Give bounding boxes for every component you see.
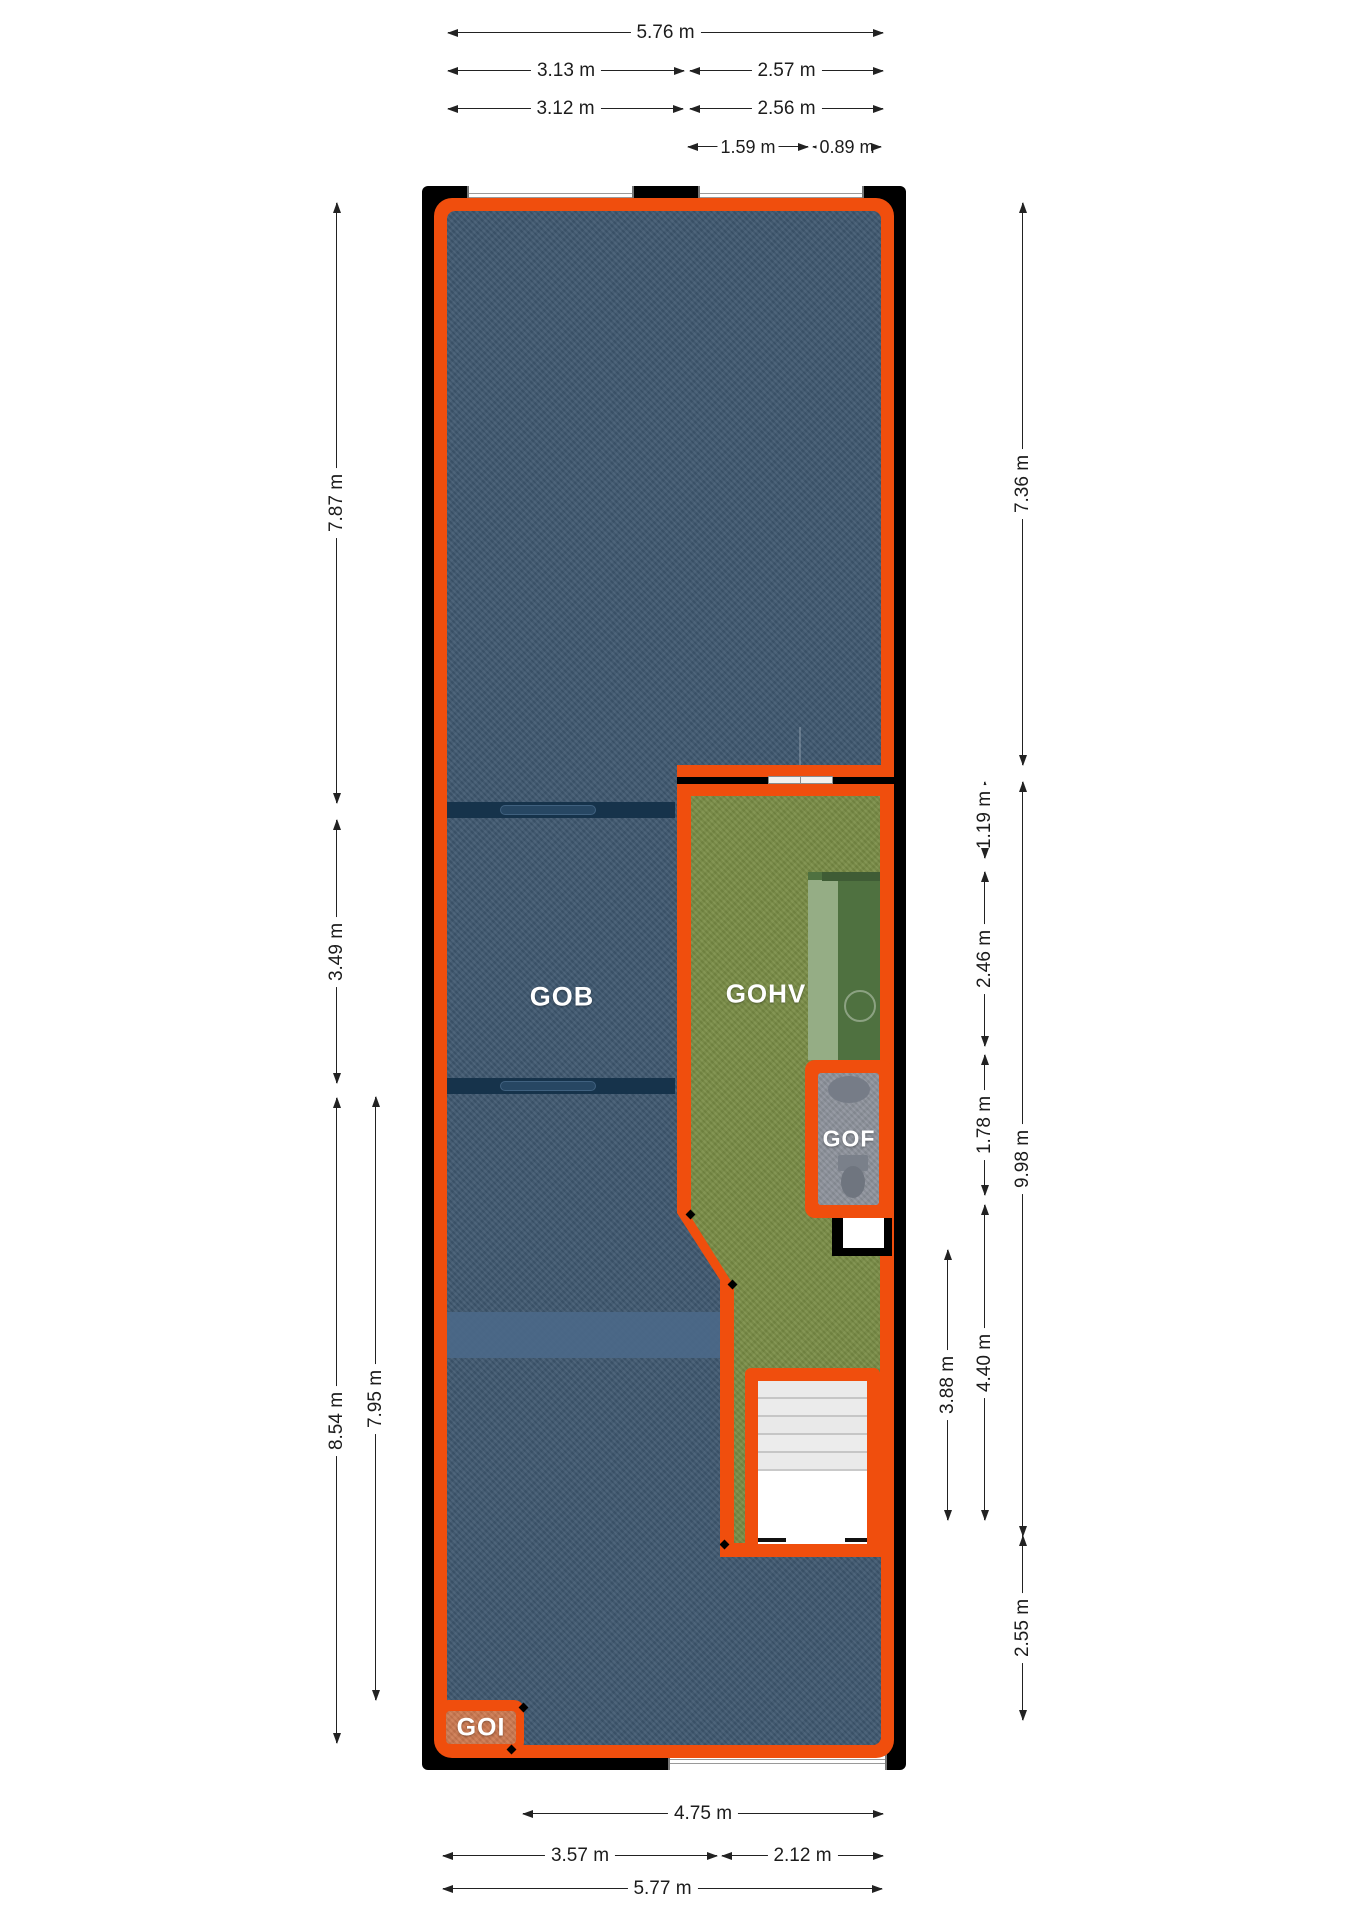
stair-tread bbox=[758, 1453, 867, 1471]
partition-line-upper bbox=[447, 802, 675, 818]
floor-light-band bbox=[447, 1312, 720, 1358]
kitchen-counter-icon bbox=[808, 872, 880, 1060]
stair-base-wall bbox=[758, 1538, 786, 1542]
dim-bottom-right: 2.12 m bbox=[722, 1855, 883, 1856]
dim-label: 8.54 m bbox=[325, 1385, 349, 1455]
dim-label: 1.59 m bbox=[717, 135, 778, 159]
dim-left-upper: 7.87 m bbox=[336, 203, 337, 803]
dim-label: 9.98 m bbox=[1011, 1124, 1035, 1194]
dim-top-window: 1.59 m bbox=[688, 146, 808, 147]
dim-bottom-left: 3.57 m bbox=[443, 1855, 717, 1856]
dim-top-left-inner: 3.12 m bbox=[448, 108, 683, 109]
dim-label: 2.46 m bbox=[973, 924, 997, 994]
partition-glass-panel bbox=[500, 805, 596, 815]
dim-top-wall-segment: 0.89 m bbox=[813, 146, 881, 147]
partition-glass-panel bbox=[500, 1081, 596, 1091]
dim-top-right-outer: 2.57 m bbox=[690, 70, 883, 71]
dim-right-gof: 1.78 m bbox=[984, 1055, 985, 1195]
dim-label: 3.88 m bbox=[936, 1350, 960, 1420]
toilet-bowl-icon bbox=[841, 1166, 865, 1198]
dim-label: 2.56 m bbox=[751, 97, 821, 121]
dim-label: 2.12 m bbox=[767, 1844, 837, 1868]
dim-label: 4.40 m bbox=[973, 1327, 997, 1397]
dim-right-kitchen: 2.46 m bbox=[984, 872, 985, 1046]
dim-label: 5.76 m bbox=[630, 21, 700, 45]
gohv-label: GOHV bbox=[726, 979, 807, 1010]
dim-top-left-outer: 3.13 m bbox=[448, 70, 684, 71]
stair-base-wall bbox=[845, 1538, 867, 1542]
partition-line-lower bbox=[447, 1078, 675, 1094]
dim-top-total-width: 5.76 m bbox=[448, 32, 883, 33]
interior-window-icon bbox=[768, 776, 833, 784]
dim-right-stair-outer: 4.40 m bbox=[984, 1205, 985, 1520]
stair-tread bbox=[758, 1381, 867, 1399]
dim-label: 2.55 m bbox=[1011, 1593, 1035, 1663]
sink-icon bbox=[844, 990, 876, 1022]
dim-label: 2.57 m bbox=[751, 59, 821, 83]
dim-label: 1.78 m bbox=[973, 1090, 997, 1160]
dim-label: 1.19 m bbox=[973, 785, 997, 855]
dim-label: 4.75 m bbox=[668, 1802, 738, 1826]
dim-bottom-total: 5.77 m bbox=[443, 1888, 882, 1889]
stair-well bbox=[758, 1381, 867, 1544]
dim-right-gohv-total: 9.98 m bbox=[1022, 782, 1023, 1536]
dim-label: 3.12 m bbox=[530, 97, 600, 121]
dim-right-stair-inner: 3.88 m bbox=[947, 1250, 948, 1520]
dim-right-upper: 7.36 m bbox=[1022, 203, 1023, 765]
stair-tread bbox=[758, 1435, 867, 1453]
entry-niche bbox=[843, 1218, 884, 1248]
floorplan-page: { "plan": { "type": "floor-plan", "rooms… bbox=[0, 0, 1358, 1920]
dim-left-lower-outer: 8.54 m bbox=[336, 1098, 337, 1743]
dim-right-gohv-top: 1.19 m bbox=[984, 782, 985, 858]
washbasin-icon bbox=[828, 1076, 870, 1103]
dim-label: 0.89 m bbox=[816, 135, 877, 159]
dim-label: 7.95 m bbox=[364, 1363, 388, 1433]
dim-right-lower: 2.55 m bbox=[1022, 1536, 1023, 1720]
dim-label: 3.13 m bbox=[531, 59, 601, 83]
dim-left-middle: 3.49 m bbox=[336, 820, 337, 1083]
dim-label: 7.36 m bbox=[1011, 449, 1035, 519]
stair-tread bbox=[758, 1417, 867, 1435]
gob-label: GOB bbox=[530, 982, 595, 1013]
dim-label: 5.77 m bbox=[627, 1877, 697, 1901]
kitchen-counter-front bbox=[808, 880, 838, 1060]
goi-label: GOI bbox=[457, 1714, 506, 1743]
dim-label: 3.57 m bbox=[545, 1844, 615, 1868]
dim-bottom-inner: 4.75 m bbox=[523, 1813, 883, 1814]
dim-top-right-inner: 2.56 m bbox=[690, 108, 883, 109]
dim-left-lower-inner: 7.95 m bbox=[375, 1097, 376, 1700]
dim-label: 7.87 m bbox=[325, 468, 349, 538]
kitchen-counter-cap bbox=[822, 872, 880, 881]
corner-tick-icon bbox=[720, 1540, 730, 1550]
floor-plan: GOF GOHV GOI GOB bbox=[422, 186, 906, 1770]
stair-tread bbox=[758, 1399, 867, 1417]
room-gof: GOF bbox=[805, 1060, 892, 1218]
window-mullion bbox=[800, 777, 801, 783]
door-swing-hint bbox=[799, 727, 801, 765]
gof-label: GOF bbox=[823, 1126, 876, 1153]
dim-label: 3.49 m bbox=[325, 916, 349, 986]
staircase bbox=[745, 1368, 880, 1557]
